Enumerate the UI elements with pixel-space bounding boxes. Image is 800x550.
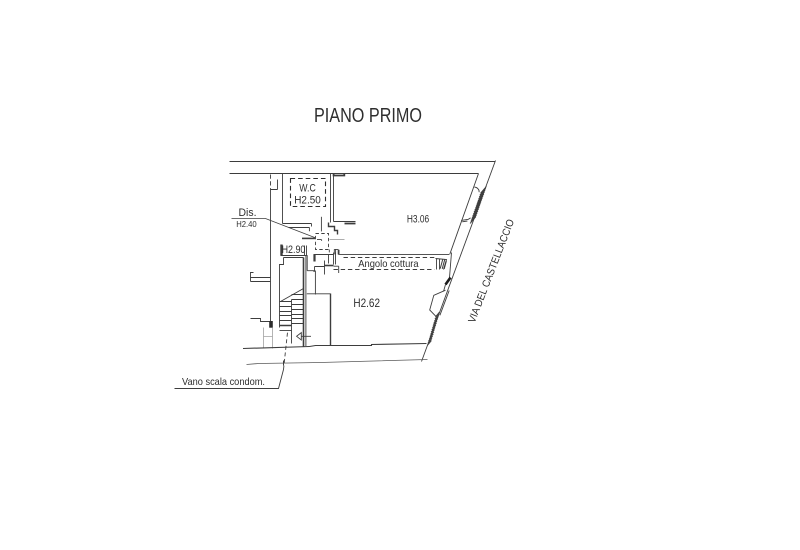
svg-text:PIANO PRIMO: PIANO PRIMO — [314, 104, 422, 127]
svg-text:W.C: W.C — [299, 183, 316, 195]
svg-text:H2.50: H2.50 — [294, 195, 321, 207]
svg-text:Dis.: Dis. — [239, 207, 257, 219]
svg-text:Vano scala condom.: Vano scala condom. — [182, 376, 265, 388]
svg-text:VIA DEL CASTELLACCIO: VIA DEL CASTELLACCIO — [466, 218, 517, 325]
svg-text:H2.90: H2.90 — [282, 244, 306, 256]
svg-text:Angolo cottura: Angolo cottura — [358, 258, 418, 270]
svg-text:H2.40: H2.40 — [236, 219, 257, 229]
svg-text:H3.06: H3.06 — [407, 214, 429, 226]
svg-text:H2.62: H2.62 — [353, 296, 380, 310]
